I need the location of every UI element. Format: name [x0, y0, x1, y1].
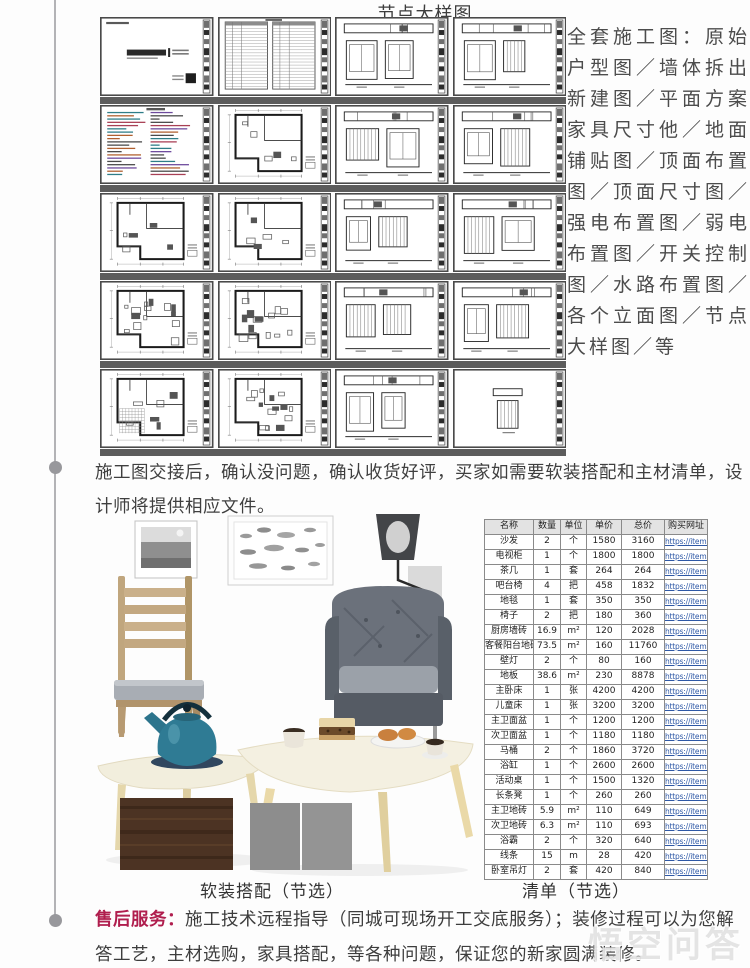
table-cell: 个: [561, 774, 587, 789]
table-cell: 1200: [587, 714, 622, 729]
table-row: 壁灯2个80160https://item.taob: [485, 654, 708, 669]
table-cell: 壁灯: [485, 654, 534, 669]
buy-link[interactable]: https://item.taob: [665, 597, 708, 606]
drawing-thumbnail[interactable]: [100, 105, 214, 184]
table-cell: https://item.taob: [665, 729, 708, 744]
table-cell: 180: [587, 609, 622, 624]
table-cell: 套: [561, 564, 587, 579]
table-cell: 1832: [622, 579, 665, 594]
table-cell: m²: [561, 819, 587, 834]
buy-link[interactable]: https://item.taob: [665, 747, 708, 756]
table-row: 椅子2把180360https://item.taob: [485, 609, 708, 624]
buy-link[interactable]: https://item.taob: [665, 732, 708, 741]
table-cell: 主卧床: [485, 684, 534, 699]
table-cell: 5.9: [534, 804, 561, 819]
table-cell: 260: [622, 789, 665, 804]
table-cell: 活动桌: [485, 774, 534, 789]
framed-art-wide: [228, 516, 333, 585]
drawing-thumbnail[interactable]: [335, 17, 449, 96]
table-cell: 1: [534, 714, 561, 729]
drawing-thumbnail[interactable]: [100, 369, 214, 448]
table-cell: https://item.taob: [665, 684, 708, 699]
table-cell: m²: [561, 804, 587, 819]
table-cell: https://item.taob: [665, 549, 708, 564]
table-cell: 260: [587, 789, 622, 804]
table-row: 活动桌1个15001320https://item.taob: [485, 774, 708, 789]
buy-link[interactable]: https://item.taob: [665, 837, 708, 846]
table-cell: 把: [561, 579, 587, 594]
buy-link[interactable]: https://item.taob: [665, 822, 708, 831]
table-cell: 次卫面盆: [485, 729, 534, 744]
table-cell: 个: [561, 744, 587, 759]
drawing-thumbnail[interactable]: [453, 193, 567, 272]
table-row: 沙发2个15803160https://item.taob: [485, 534, 708, 549]
table-cell: 次卫地砖: [485, 819, 534, 834]
table-row: 地板38.6m²2308878https://item.taob: [485, 669, 708, 684]
table-row: 吧台椅4把4581832https://item.taob: [485, 579, 708, 594]
table-cell: https://item.taob: [665, 804, 708, 819]
table-cell: m²: [561, 624, 587, 639]
sheet-edge-bar: [100, 361, 566, 368]
table-cell: 长条凳: [485, 789, 534, 804]
table-cell: 4200: [587, 684, 622, 699]
table-row: 次卫面盆1个11801180https://item.taob: [485, 729, 708, 744]
table-header-cell: 购买网址: [665, 520, 708, 535]
table-cell: 张: [561, 684, 587, 699]
table-cell: 15: [534, 849, 561, 864]
table-cell: 1: [534, 549, 561, 564]
table-cell: 120: [587, 624, 622, 639]
design-service-page: 节点大样图 全套施工图：原始户型图／墙体拆出新建图／平面方案家具尺寸他／地面铺贴…: [0, 0, 750, 968]
table-cell: 1180: [622, 729, 665, 744]
buy-link[interactable]: https://item.taob: [665, 792, 708, 801]
buy-link[interactable]: https://item.taob: [665, 852, 708, 861]
table-cell: 张: [561, 699, 587, 714]
table-cell: 1: [534, 774, 561, 789]
table-cell: 1: [534, 594, 561, 609]
table-cell: 38.6: [534, 669, 561, 684]
table-cell: 1: [534, 789, 561, 804]
furniture-collage-image[interactable]: [88, 508, 483, 876]
table-cell: 电视柜: [485, 549, 534, 564]
buy-link[interactable]: https://item.taob: [665, 687, 708, 696]
table-cell: 110: [587, 804, 622, 819]
table-cell: 230: [587, 669, 622, 684]
table-cell: 360: [622, 609, 665, 624]
full-drawing-set-text: 全套施工图：原始户型图／墙体拆出新建图／平面方案家具尺寸他／地面铺贴图／顶面布置…: [567, 22, 750, 363]
sheet-edge-bar: [100, 185, 566, 192]
buy-link[interactable]: https://item.taob: [665, 762, 708, 771]
table-cell: 1: [534, 684, 561, 699]
table-cell: 浴缸: [485, 759, 534, 774]
drawing-thumbnail[interactable]: [218, 281, 332, 360]
drawings-grid: [100, 17, 566, 457]
table-cell: 4: [534, 579, 561, 594]
table-cell: 2: [534, 654, 561, 669]
table-cell: 640: [622, 834, 665, 849]
table-cell: 350: [587, 594, 622, 609]
tile-swatches: [250, 803, 352, 870]
table-cell: 73.5: [534, 639, 561, 654]
table-cell: 693: [622, 819, 665, 834]
table-cell: https://item.taob: [665, 819, 708, 834]
buy-link[interactable]: https://item.taob: [665, 777, 708, 786]
drawing-thumbnail[interactable]: [335, 281, 449, 360]
timeline-dot: [49, 461, 62, 474]
table-header-cell: 数量: [534, 520, 561, 535]
table-cell: 1200: [622, 714, 665, 729]
table-cell: 浴霸: [485, 834, 534, 849]
table-cell: 厨房墙砖: [485, 624, 534, 639]
table-cell: 110: [587, 819, 622, 834]
buy-link[interactable]: https://item.taob: [665, 672, 708, 681]
table-cell: 个: [561, 729, 587, 744]
table-cell: 地毯: [485, 594, 534, 609]
table-cell: 主卫面盆: [485, 714, 534, 729]
drawing-thumbnail[interactable]: [218, 193, 332, 272]
table-cell: 地板: [485, 669, 534, 684]
table-cell: 个: [561, 789, 587, 804]
table-cell: 350: [622, 594, 665, 609]
table-cell: 主卫地砖: [485, 804, 534, 819]
table-cell: 3160: [622, 534, 665, 549]
table-cell: 3200: [587, 699, 622, 714]
table-cell: 个: [561, 549, 587, 564]
table-cell: https://item.taob: [665, 834, 708, 849]
table-cell: https://item.taob: [665, 639, 708, 654]
table-header-cell: 总价: [622, 520, 665, 535]
buy-link[interactable]: https://item.taob: [665, 867, 708, 876]
material-price-table: 名称数量单位单价总价购买网址 沙发2个15803160https://item.…: [484, 519, 708, 880]
table-cell: 2: [534, 609, 561, 624]
timeline-dot: [49, 914, 62, 927]
buy-link[interactable]: https://item.taob: [665, 642, 708, 651]
table-cell: 吧台椅: [485, 579, 534, 594]
table-cell: 1320: [622, 774, 665, 789]
buy-link[interactable]: https://item.taob: [665, 627, 708, 636]
table-row: 儿童床1张32003200https://item.taob: [485, 699, 708, 714]
table-row: 茶几1套264264https://item.taob: [485, 564, 708, 579]
table-row: 马桶2个18603720https://item.taob: [485, 744, 708, 759]
table-row: 主卫面盆1个12001200https://item.taob: [485, 714, 708, 729]
table-cell: https://item.taob: [665, 849, 708, 864]
table-cell: 椅子: [485, 609, 534, 624]
sheet-edge-bar: [100, 273, 566, 280]
drawing-thumbnail[interactable]: [100, 281, 214, 360]
buy-link[interactable]: https://item.taob: [665, 612, 708, 621]
table-cell: 320: [587, 834, 622, 849]
drawing-thumbnail[interactable]: [100, 17, 214, 96]
table-body: 沙发2个15803160https://item.taob电视柜1个180018…: [485, 534, 708, 879]
table-cell: https://item.taob: [665, 609, 708, 624]
table-cell: https://item.taob: [665, 654, 708, 669]
table-cell: 1500: [587, 774, 622, 789]
framed-art-small: [135, 521, 197, 578]
table-cell: https://item.taob: [665, 669, 708, 684]
table-row: 主卫地砖5.9m²110649https://item.taob: [485, 804, 708, 819]
table-cell: https://item.taob: [665, 789, 708, 804]
buy-link[interactable]: https://item.taob: [665, 807, 708, 816]
table-cell: https://item.taob: [665, 534, 708, 549]
drawing-thumbnail[interactable]: [453, 281, 567, 360]
table-row: 长条凳1个260260https://item.taob: [485, 789, 708, 804]
table-cell: 个: [561, 534, 587, 549]
table-cell: https://item.taob: [665, 579, 708, 594]
table-cell: 11760: [622, 639, 665, 654]
drawing-thumbnail[interactable]: [335, 105, 449, 184]
table-cell: 16.9: [534, 624, 561, 639]
table-cell: 420: [622, 849, 665, 864]
table-header-cell: 单价: [587, 520, 622, 535]
table-cell: 1: [534, 564, 561, 579]
drawing-thumbnail[interactable]: [218, 17, 332, 96]
kettle: [144, 704, 223, 769]
table-cell: 8878: [622, 669, 665, 684]
drawing-thumbnail[interactable]: [453, 17, 567, 96]
table-cell: m²: [561, 669, 587, 684]
table-cell: 160: [622, 654, 665, 669]
buy-link[interactable]: https://item.taob: [665, 657, 708, 666]
wood-chair: [114, 576, 204, 737]
drawing-thumbnail[interactable]: [453, 105, 567, 184]
table-cell: 1860: [587, 744, 622, 759]
table-cell: 264: [587, 564, 622, 579]
table-cell: https://item.taob: [665, 774, 708, 789]
table-cell: 3720: [622, 744, 665, 759]
table-header-row: 名称数量单位单价总价购买网址: [485, 520, 708, 535]
table-row: 厨房墙砖16.9m²1202028https://item.taob: [485, 624, 708, 639]
drawing-thumbnail[interactable]: [335, 369, 449, 448]
table-cell: 1180: [587, 729, 622, 744]
table-cell: 1580: [587, 534, 622, 549]
buy-link[interactable]: https://item.taob: [665, 537, 708, 546]
table-cell: https://item.taob: [665, 759, 708, 774]
table-cell: 沙发: [485, 534, 534, 549]
table-cell: https://item.taob: [665, 699, 708, 714]
table-row: 客餐阳台地砖73.5m²16011760https://item.taob: [485, 639, 708, 654]
table-cell: 1800: [587, 549, 622, 564]
table-cell: 1: [534, 759, 561, 774]
after-sale-label: 售后服务：: [95, 910, 185, 930]
drawing-thumbnail[interactable]: [100, 193, 214, 272]
table-header-cell: 单位: [561, 520, 587, 535]
table-header-cell: 名称: [485, 520, 534, 535]
table-cell: 儿童床: [485, 699, 534, 714]
table-cell: 把: [561, 609, 587, 624]
table-cell: m: [561, 849, 587, 864]
table-cell: https://item.taob: [665, 624, 708, 639]
table-cell: 264: [622, 564, 665, 579]
wood-swatch: [120, 798, 233, 870]
price-list-caption: 清单（节选）: [426, 877, 726, 902]
buy-link[interactable]: https://item.taob: [665, 717, 708, 726]
drawing-thumbnail[interactable]: [218, 105, 332, 184]
table-cell: 2: [534, 834, 561, 849]
table-cell: 3200: [622, 699, 665, 714]
soft-furnishing-caption: 软装搭配（节选）: [122, 877, 422, 902]
table-cell: 2: [534, 534, 561, 549]
table-cell: 458: [587, 579, 622, 594]
table-cell: 个: [561, 714, 587, 729]
table-cell: 2028: [622, 624, 665, 639]
table-cell: 1: [534, 699, 561, 714]
sheet-edge-bar: [100, 449, 566, 456]
table-row: 浴霸2个320640https://item.taob: [485, 834, 708, 849]
table-row: 次卫地砖6.3m²110693https://item.taob: [485, 819, 708, 834]
drawing-thumbnail[interactable]: [453, 369, 567, 448]
table-cell: 6.3: [534, 819, 561, 834]
table-cell: 649: [622, 804, 665, 819]
table-cell: 80: [587, 654, 622, 669]
table-cell: m²: [561, 639, 587, 654]
watermark: 悟空问答: [588, 917, 744, 968]
drawing-thumbnail[interactable]: [218, 369, 332, 448]
table-row: 电视柜1个18001800https://item.taob: [485, 549, 708, 564]
table-cell: 茶几: [485, 564, 534, 579]
buy-link[interactable]: https://item.taob: [665, 582, 708, 591]
table-cell: https://item.taob: [665, 564, 708, 579]
table-cell: 1800: [622, 549, 665, 564]
table-cell: 个: [561, 834, 587, 849]
table-cell: 1: [534, 729, 561, 744]
table-cell: https://item.taob: [665, 714, 708, 729]
buy-link[interactable]: https://item.taob: [665, 567, 708, 576]
table-cell: 个: [561, 654, 587, 669]
table-cell: 4200: [622, 684, 665, 699]
table-cell: 2: [534, 744, 561, 759]
drawing-thumbnail[interactable]: [335, 193, 449, 272]
buy-link[interactable]: https://item.taob: [665, 552, 708, 561]
table-cell: 个: [561, 759, 587, 774]
table-cell: 线条: [485, 849, 534, 864]
table-row: 主卧床1张42004200https://item.taob: [485, 684, 708, 699]
table-cell: 马桶: [485, 744, 534, 759]
table-cell: 客餐阳台地砖: [485, 639, 534, 654]
table-cell: 2600: [622, 759, 665, 774]
table-cell: https://item.taob: [665, 594, 708, 609]
sheet-edge-bar: [100, 97, 566, 104]
table-cell: 160: [587, 639, 622, 654]
table-row: 地毯1套350350https://item.taob: [485, 594, 708, 609]
table-cell: 套: [561, 594, 587, 609]
buy-link[interactable]: https://item.taob: [665, 702, 708, 711]
table-cell: https://item.taob: [665, 744, 708, 759]
table-row: 浴缸1个26002600https://item.taob: [485, 759, 708, 774]
table-row: 线条15m28420https://item.taob: [485, 849, 708, 864]
table-cell: 2600: [587, 759, 622, 774]
table-cell: 28: [587, 849, 622, 864]
